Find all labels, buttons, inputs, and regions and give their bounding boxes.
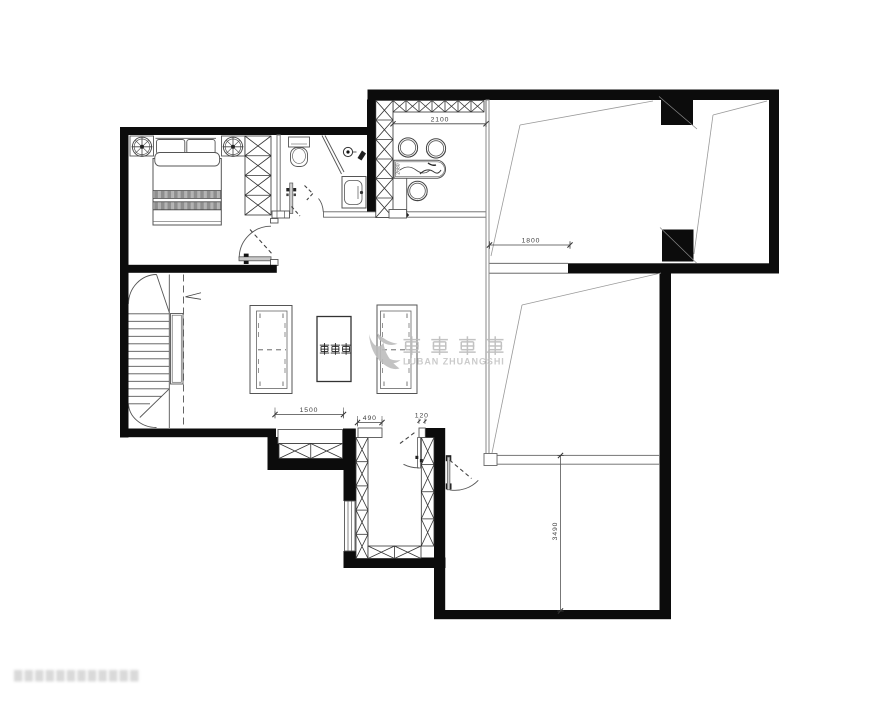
svg-text:2100: 2100 <box>431 116 450 123</box>
svg-text:2680: 2680 <box>395 163 401 174</box>
svg-text:1500: 1500 <box>300 407 319 414</box>
svg-text:3490: 3490 <box>552 522 559 541</box>
svg-text:1800: 1800 <box>522 238 541 245</box>
svg-text:490: 490 <box>363 415 377 422</box>
svg-text:120: 120 <box>415 412 429 419</box>
svg-text:LUBAN ZHUANGSHI: LUBAN ZHUANGSHI <box>403 356 505 366</box>
